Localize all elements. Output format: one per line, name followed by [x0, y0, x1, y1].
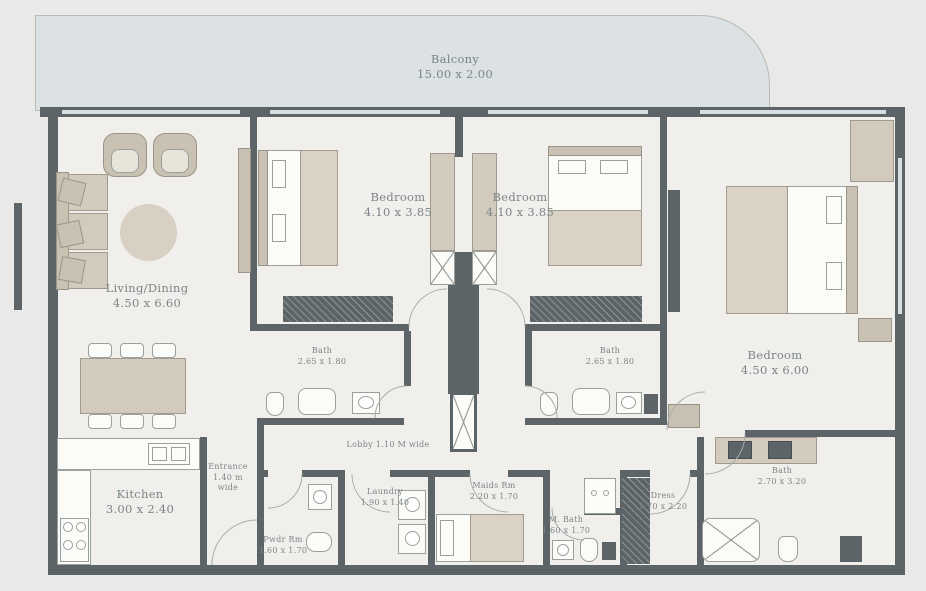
wall-bedroom3-bottom — [745, 430, 895, 437]
wall-center-stub — [455, 115, 463, 157]
lobby-name: Lobby 1.10 M wide — [347, 440, 430, 451]
bathtub — [702, 518, 760, 562]
bedroom2-name: Bedroom — [486, 190, 554, 205]
kitchen-dims: 3.00 x 2.40 — [106, 502, 174, 517]
bath1-dims: 2.65 x 1.80 — [298, 357, 347, 368]
powder-label: Pwdr Rm 1.60 x 1.70 — [259, 535, 308, 556]
powder-dims: 1.60 x 1.70 — [259, 546, 308, 557]
kitchen-name: Kitchen — [106, 487, 174, 502]
wall-bath1-right — [404, 331, 411, 386]
toilet — [580, 538, 598, 562]
bed-headboard — [258, 150, 268, 266]
shaft-panel — [450, 392, 477, 452]
wall-kitchen-entrance — [200, 437, 207, 566]
wall-maids-top-b — [508, 470, 545, 477]
toilet — [778, 536, 798, 562]
glazing-bedroom1 — [270, 110, 440, 114]
glazing-living — [62, 110, 240, 114]
kitchen-sink-bowl — [171, 447, 186, 461]
living-name: Living/Dining — [106, 281, 189, 296]
dining-chair — [120, 414, 144, 429]
dryer-door — [405, 531, 420, 546]
wall-exterior-stub — [14, 203, 22, 310]
bathtub — [298, 388, 336, 415]
shower-unit — [644, 394, 658, 414]
wall-laundry-maids — [428, 470, 435, 566]
bedroom1-label: Bedroom 4.10 x 3.85 — [364, 190, 432, 220]
bed-blanket — [300, 150, 338, 266]
toilet — [266, 392, 284, 416]
laundry-label: Laundry 1.90 x 1.40 — [361, 487, 410, 508]
dress-name: Dress — [639, 491, 688, 502]
bath2-name: Bath — [586, 346, 635, 357]
bedroom1-name: Bedroom — [364, 190, 432, 205]
cabinet-knob — [603, 490, 609, 496]
balcony-dims: 15.00 x 2.00 — [417, 67, 493, 82]
kitchen-label: Kitchen 3.00 x 2.40 — [106, 487, 174, 517]
balcony-area — [35, 15, 770, 111]
wardrobe-panel — [472, 251, 497, 285]
sink-basin — [768, 441, 792, 459]
powder-name: Pwdr Rm — [259, 535, 308, 546]
dining-table — [80, 358, 186, 414]
dining-chair — [120, 343, 144, 358]
wall-bath2-left — [525, 331, 532, 386]
living-cabinet — [238, 148, 251, 273]
wall-dress-top-a — [627, 470, 650, 477]
shower-unit — [602, 542, 616, 560]
bath3-name: Bath — [758, 466, 807, 477]
balcony-name: Balcony — [417, 52, 493, 67]
bed-pillow — [272, 160, 286, 188]
bed-blanket — [726, 186, 788, 314]
living-dims: 4.50 x 6.60 — [106, 296, 189, 311]
bath3-label: Bath 2.70 x 3.20 — [758, 466, 807, 487]
dining-chair — [88, 343, 112, 358]
sink-bowl — [358, 396, 374, 409]
laundry-dims: 1.90 x 1.40 — [361, 498, 410, 509]
bedroom3-name: Bedroom — [741, 348, 809, 363]
bed-pillow — [600, 160, 628, 174]
maids-label: Maids Rm 2.20 x 1.70 — [470, 481, 519, 502]
bed-headboard — [548, 146, 642, 156]
glazing-bedroom2 — [488, 110, 648, 114]
bed-blanket — [470, 514, 524, 562]
entrance-wide: wide — [208, 483, 248, 494]
wall-living-bedroom1 — [250, 115, 257, 331]
bed-pillow — [558, 160, 586, 174]
wardrobe — [430, 153, 455, 251]
entrance-label: Entrance 1.40 m wide — [208, 462, 248, 494]
bathtub — [572, 388, 610, 415]
stove-burner — [76, 522, 86, 532]
dining-chair — [152, 343, 176, 358]
lobby-label: Lobby 1.10 M wide — [347, 440, 430, 451]
glazing-bedroom3-side — [898, 158, 902, 314]
dining-chair — [152, 414, 176, 429]
sink-basin — [728, 441, 752, 459]
bed-pillow — [440, 520, 454, 556]
bed-pillow — [272, 214, 286, 242]
mbath-label: M. Bath 1.60 x 1.70 — [542, 515, 591, 536]
nightstand — [858, 318, 892, 342]
entrance-name: Entrance — [208, 462, 248, 473]
mbath-name: M. Bath — [542, 515, 591, 526]
armchair-seat — [161, 149, 189, 173]
stove-burner — [63, 522, 73, 532]
bedroom3-label: Bedroom 4.50 x 6.00 — [741, 348, 809, 378]
living-label: Living/Dining 4.50 x 6.60 — [106, 281, 189, 311]
wall-powder-laundry — [338, 470, 345, 566]
balcony-label: Balcony 15.00 x 2.00 — [417, 52, 493, 82]
wall-bath2-bottom — [525, 418, 667, 425]
toilet — [306, 532, 332, 552]
laundry-name: Laundry — [361, 487, 410, 498]
maids-dims: 2.20 x 1.70 — [470, 492, 519, 503]
throw-pillow — [58, 256, 86, 284]
glazing-bedroom3 — [700, 110, 886, 114]
stove-burner — [76, 540, 86, 550]
dress-label: Dress 1.70 x 2.20 — [639, 491, 688, 512]
bath3-dims: 2.70 x 3.20 — [758, 477, 807, 488]
dresser — [530, 296, 642, 322]
dress-dims: 1.70 x 2.20 — [639, 502, 688, 513]
kitchen-sink-bowl — [152, 447, 167, 461]
entrance-dims: 1.40 m — [208, 473, 248, 484]
dresser — [283, 296, 393, 322]
wall-powder-top-a — [257, 470, 268, 477]
throw-pillow — [56, 220, 84, 248]
floor-plan: Balcony 15.00 x 2.00 — [0, 0, 926, 591]
bath2-label: Bath 2.65 x 1.80 — [586, 346, 635, 367]
bedroom1-dims: 4.10 x 3.85 — [364, 205, 432, 220]
wardrobe-panel — [430, 251, 455, 285]
maids-name: Maids Rm — [470, 481, 519, 492]
armchair-seat — [111, 149, 139, 173]
sink-bowl — [621, 396, 636, 409]
wall-maids-top-a — [435, 470, 470, 477]
wardrobe — [850, 120, 894, 182]
bed-pillow — [826, 262, 842, 290]
bed-pillow — [826, 196, 842, 224]
wall-bedroom1-bath — [257, 324, 409, 331]
bath1-label: Bath 2.65 x 1.80 — [298, 346, 347, 367]
bench — [668, 404, 700, 428]
wall-laundry-top — [390, 470, 428, 477]
bedroom2-label: Bedroom 4.10 x 3.85 — [486, 190, 554, 220]
toilet — [540, 392, 558, 416]
bath2-dims: 2.65 x 1.80 — [586, 357, 635, 368]
mbath-dims: 1.60 x 1.70 — [542, 526, 591, 537]
sink-bowl — [313, 490, 327, 504]
shower-unit — [840, 536, 862, 562]
round-rug — [120, 204, 177, 261]
cabinet — [584, 478, 616, 514]
bedroom2-dims: 4.10 x 3.85 — [486, 205, 554, 220]
wall-bath1-bottom — [257, 418, 404, 425]
wall-bottom — [48, 565, 905, 575]
bath1-name: Bath — [298, 346, 347, 357]
wall-bedroom2-bath — [525, 324, 667, 331]
wall-dress-top-b — [690, 470, 697, 477]
stove-burner — [63, 540, 73, 550]
bed-headboard — [846, 186, 858, 314]
tv-console — [668, 190, 680, 312]
cabinet-knob — [591, 490, 597, 496]
sink-bowl — [557, 544, 569, 556]
dining-chair — [88, 414, 112, 429]
bed-blanket — [548, 210, 642, 266]
wall-bedroom2-bedroom3 — [660, 115, 667, 425]
bedroom3-dims: 4.50 x 6.00 — [741, 363, 809, 378]
